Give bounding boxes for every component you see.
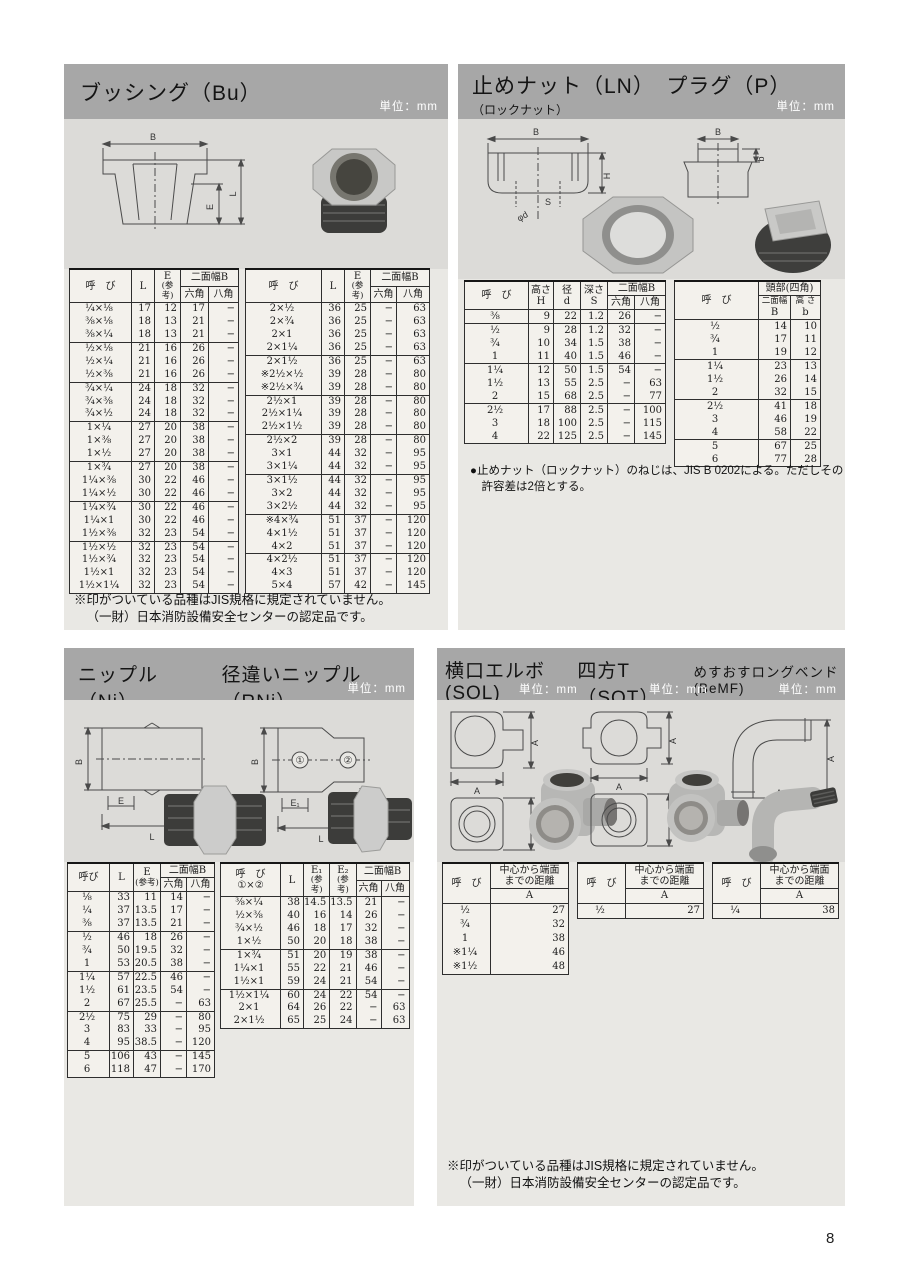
value-cell: − xyxy=(209,567,239,580)
size-name-cell: 1½ xyxy=(675,373,759,386)
value-cell: 55 xyxy=(281,963,304,976)
value-cell: 80 xyxy=(397,408,430,421)
value-cell: − xyxy=(381,949,409,962)
value-cell: − xyxy=(161,1051,187,1064)
table-row: 1¼×1302246− xyxy=(70,515,239,528)
value-cell: 16 xyxy=(155,356,181,369)
value-cell: − xyxy=(371,329,397,342)
size-name-cell: ½×⅛ xyxy=(70,342,132,355)
value-cell: 33 xyxy=(110,892,134,905)
value-cell: 25 xyxy=(345,329,371,342)
table-header: 呼 び①×② L E₁(参考) E₂(参考) 二面幅B 六角 八角 xyxy=(221,863,410,897)
table-row: 45822 xyxy=(675,426,821,440)
value-cell: 26 xyxy=(759,373,791,386)
value-cell: 30 xyxy=(132,501,155,514)
value-cell: 46 xyxy=(281,923,304,936)
col-E: E(参考) xyxy=(345,269,371,303)
dim-label-A: A xyxy=(826,756,836,762)
value-cell: 20 xyxy=(304,936,330,949)
value-cell: 20 xyxy=(155,448,181,461)
bushing-drawing-area: B E L xyxy=(64,119,448,269)
value-cell: − xyxy=(371,355,397,368)
size-name-cell: ※1½ xyxy=(443,960,491,975)
value-cell: − xyxy=(371,303,397,316)
table-row: ※1¼46 xyxy=(443,946,569,960)
table-header: 呼 び 高さH 径d 深さS 二面幅B 六角 八角 xyxy=(465,281,666,310)
value-cell: 27 xyxy=(132,448,155,461)
table-row: 2×½3625−63 xyxy=(246,303,430,316)
table-header: 呼 び 頭部(四角) 二面幅B 高 さb xyxy=(675,281,821,319)
value-cell: 21 xyxy=(181,329,209,342)
value-cell: 16 xyxy=(155,369,181,382)
value-cell: − xyxy=(187,905,215,918)
value-cell: − xyxy=(381,976,409,989)
col-yobi: 呼 び①×② xyxy=(221,863,281,897)
table-row: 215682.5−77 xyxy=(465,390,666,404)
col-E2: E₂(参考) xyxy=(330,863,356,897)
value-cell: 63 xyxy=(187,998,215,1011)
sol-drawing-area: A A A xyxy=(437,700,845,862)
rni-photo xyxy=(326,782,414,858)
table-row: 1×¾51201938− xyxy=(221,949,410,962)
value-cell: 38 xyxy=(491,932,569,946)
value-cell: 18 xyxy=(155,382,181,395)
value-cell: − xyxy=(187,985,215,998)
col-yobi: 呼 び xyxy=(443,863,491,903)
value-cell: − xyxy=(161,1064,187,1077)
value-cell: 34 xyxy=(554,337,581,350)
col-nimen-B: 二面幅B xyxy=(759,296,791,320)
value-cell: 30 xyxy=(132,515,155,528)
size-name-cell: 3 xyxy=(675,413,759,426)
table-row: ½9281.232− xyxy=(465,324,666,338)
col-E: E(参考) xyxy=(155,269,181,303)
size-name-cell: 1¼ xyxy=(465,364,529,378)
value-cell: 36 xyxy=(322,316,345,329)
table-row: ⅜9221.226− xyxy=(465,310,666,324)
value-cell: 95 xyxy=(397,448,430,461)
value-cell: 22 xyxy=(304,963,330,976)
size-name-cell: ½ xyxy=(578,903,626,918)
value-cell: − xyxy=(209,501,239,514)
value-cell: 27 xyxy=(132,462,155,475)
value-cell: 120 xyxy=(397,554,430,567)
port-1-label: ① xyxy=(296,756,305,767)
value-cell: 25 xyxy=(345,303,371,316)
value-cell: 37 xyxy=(110,905,134,918)
value-cell: 38 xyxy=(281,897,304,910)
rni-table: 呼 び①×② L E₁(参考) E₂(参考) 二面幅B 六角 八角 ⅜×¼381… xyxy=(220,862,410,1029)
value-cell: − xyxy=(187,932,215,945)
table-row: ¾×⅜241832− xyxy=(70,396,239,409)
value-cell: 32 xyxy=(132,528,155,541)
table-row: ¾×¼241832− xyxy=(70,382,239,395)
value-cell: 38 xyxy=(181,448,209,461)
value-cell: 44 xyxy=(322,501,345,514)
value-cell: − xyxy=(371,382,397,395)
value-cell: 32 xyxy=(132,541,155,554)
value-cell: 17 xyxy=(132,303,155,316)
jis-note: ※印がついている品種はJIS規格に規定されていません。 （一財）日本消防設備安全… xyxy=(74,592,391,626)
value-cell: − xyxy=(187,892,215,905)
table-row: ¾1711 xyxy=(675,333,821,346)
value-cell: − xyxy=(371,408,397,421)
value-cell: − xyxy=(635,324,666,338)
col-oct: 八角 xyxy=(209,286,239,303)
table-row: 1×⅜272038− xyxy=(70,435,239,448)
size-name-cell: 1×¼ xyxy=(70,422,132,435)
table-row: ½×¼211626− xyxy=(70,356,239,369)
value-cell: 75 xyxy=(110,1011,134,1024)
value-cell: − xyxy=(371,541,397,554)
table-row: 4×1½5137−120 xyxy=(246,528,430,541)
table-row: ¾10341.538− xyxy=(465,337,666,350)
value-cell: 54 xyxy=(356,989,381,1002)
value-cell: 88 xyxy=(554,404,581,418)
table-header: 呼 び 中心から端面までの距離 A xyxy=(713,863,839,903)
value-cell: 32 xyxy=(345,461,371,474)
table-row: 1½×1¼60242254− xyxy=(221,989,410,1002)
value-cell: 1.5 xyxy=(581,364,608,378)
nipple-table: 呼び L E(参考) 二面幅B 六角 八角 ⅛331114−¼3713.517−… xyxy=(67,862,215,1078)
value-cell: 21 xyxy=(356,897,381,910)
size-name-cell: 4 xyxy=(68,1037,110,1050)
value-cell: 26 xyxy=(181,356,209,369)
value-cell: 27 xyxy=(626,903,704,918)
value-cell: 100 xyxy=(554,417,581,430)
value-cell: 39 xyxy=(322,369,345,382)
value-cell: − xyxy=(371,395,397,408)
size-name-cell: 1½ xyxy=(465,377,529,390)
value-cell: − xyxy=(209,435,239,448)
value-cell: 95 xyxy=(187,1024,215,1037)
table-row: 38333−95 xyxy=(68,1024,215,1037)
value-cell: 16 xyxy=(155,342,181,355)
value-cell: 120 xyxy=(397,528,430,541)
size-name-cell: 2×½ xyxy=(246,303,322,316)
value-cell: − xyxy=(356,1015,381,1028)
value-cell: 39 xyxy=(322,395,345,408)
table-row: 4×2½5137−120 xyxy=(246,554,430,567)
table-row: ※2½×½3928−80 xyxy=(246,369,430,382)
dim-label-B: B xyxy=(533,127,539,137)
value-cell: 37 xyxy=(345,567,371,580)
nipple-title-bar: ニップル（Ni） 径違いニップル（RNi） 単位：mm xyxy=(64,648,414,700)
table-row: 2×1½3625−63 xyxy=(246,355,430,368)
value-cell: − xyxy=(371,461,397,474)
size-name-cell: ⅜×⅛ xyxy=(70,316,132,329)
value-cell: 63 xyxy=(381,1002,409,1015)
value-cell: − xyxy=(371,342,397,355)
size-name-cell: 3×1 xyxy=(246,448,322,461)
value-cell: − xyxy=(187,971,215,984)
size-name-cell: 1¼×⅜ xyxy=(70,475,132,488)
table-header: 呼 び 中心から端面までの距離 A xyxy=(578,863,704,903)
value-cell: 28 xyxy=(345,408,371,421)
bemf-table: 呼 び 中心から端面までの距離 A ¼38 xyxy=(712,862,839,919)
value-cell: 32 xyxy=(345,501,371,514)
table-row: ⅜×¼3814.513.521− xyxy=(221,897,410,910)
size-name-cell: 1×⅜ xyxy=(70,435,132,448)
value-cell: − xyxy=(209,422,239,435)
value-cell: − xyxy=(608,404,635,418)
table-row: 1¼×¾302246− xyxy=(70,501,239,514)
size-name-cell: ¾×½ xyxy=(70,408,132,421)
value-cell: 2.5 xyxy=(581,417,608,430)
value-cell: 80 xyxy=(397,382,430,395)
table-row: 3×1½4432−95 xyxy=(246,475,430,488)
value-cell: 24 xyxy=(132,408,155,421)
value-cell: 14 xyxy=(791,373,821,386)
value-cell: 20 xyxy=(155,435,181,448)
value-cell: 13.5 xyxy=(134,905,161,918)
value-cell: 16 xyxy=(304,910,330,923)
size-name-cell: 2½×2 xyxy=(246,435,322,448)
dim-label-B: B xyxy=(74,759,84,765)
table-row: ⅛331114− xyxy=(68,892,215,905)
dim-label-A: A xyxy=(668,738,678,744)
value-cell: 47 xyxy=(134,1064,161,1077)
value-cell: 60 xyxy=(281,989,304,1002)
value-cell: 32 xyxy=(345,488,371,501)
value-cell: 38 xyxy=(356,936,381,949)
table-body: ⅛331114−¼3713.517−⅜3713.521−½461826−¾501… xyxy=(68,892,215,1078)
table-row: ⅜3713.521− xyxy=(68,918,215,931)
table-row: 4×35137−120 xyxy=(246,567,430,580)
table-row: 2½×23928−80 xyxy=(246,435,430,448)
size-name-cell: 1 xyxy=(675,346,759,360)
col-L: L xyxy=(281,863,304,897)
value-cell: − xyxy=(608,417,635,430)
nipple-drawing-area: B E E L ① ② B xyxy=(64,700,414,862)
value-cell: 100 xyxy=(635,404,666,418)
value-cell: 33 xyxy=(134,1024,161,1037)
value-cell: 36 xyxy=(322,303,345,316)
table-row: 510643−145 xyxy=(68,1051,215,1064)
value-cell: 46 xyxy=(181,475,209,488)
table-row: ※2½×¾3928−80 xyxy=(246,382,430,395)
col-yobi: 呼 び xyxy=(713,863,761,903)
value-cell: 36 xyxy=(322,355,345,368)
dim-label-B: B xyxy=(715,127,721,137)
value-cell: 63 xyxy=(397,342,430,355)
size-name-cell: 1¼ xyxy=(68,971,110,984)
value-cell: 125 xyxy=(554,430,581,444)
value-cell: 19 xyxy=(330,949,356,962)
table-row: ¾32 xyxy=(443,918,569,932)
value-cell: 26 xyxy=(304,1002,330,1015)
table-row: ※1½48 xyxy=(443,960,569,975)
dim-label-E: E xyxy=(205,204,215,210)
unit-label-sol: 単位：mm xyxy=(519,681,578,697)
table-row: 3×14432−95 xyxy=(246,448,430,461)
value-cell: 64 xyxy=(281,1002,304,1015)
value-cell: − xyxy=(371,475,397,488)
col-nimen: 二面幅B xyxy=(161,863,215,878)
value-cell: 22 xyxy=(529,430,554,444)
sot-table: 呼 び 中心から端面までの距離 A ½27 xyxy=(577,862,704,919)
value-cell: 17 xyxy=(330,923,356,936)
value-cell: 170 xyxy=(187,1064,215,1077)
value-cell: 17 xyxy=(181,303,209,316)
value-cell: 63 xyxy=(397,355,430,368)
value-cell: 25 xyxy=(345,316,371,329)
dim-label-E: E xyxy=(118,796,124,806)
dim-label-B: B xyxy=(150,132,156,142)
value-cell: 32 xyxy=(181,382,209,395)
table-body: ½1410¾1711119121¼23131½2614232152½411834… xyxy=(675,319,821,466)
table-row: ½×⅜211626− xyxy=(70,369,239,382)
col-yobi: 呼 び xyxy=(246,269,322,303)
value-cell: 37 xyxy=(110,918,134,931)
value-cell: 54 xyxy=(181,541,209,554)
value-cell: 26 xyxy=(608,310,635,324)
value-cell: 22 xyxy=(155,475,181,488)
value-cell: 95 xyxy=(397,488,430,501)
jis-note-line1: ※印がついている品種はJIS規格に規定されていません。 xyxy=(74,592,391,609)
table-row: ¾×½46181732− xyxy=(221,923,410,936)
value-cell: 44 xyxy=(322,461,345,474)
value-cell: 51 xyxy=(322,567,345,580)
value-cell: − xyxy=(381,963,409,976)
dim-label-A: A xyxy=(474,786,480,796)
value-cell: 51 xyxy=(322,528,345,541)
size-name-cell: 1½×⅜ xyxy=(70,528,132,541)
value-cell: − xyxy=(371,435,397,448)
col-hex: 六角 xyxy=(371,286,397,303)
unit-label: 単位：mm xyxy=(776,98,835,114)
value-cell: 63 xyxy=(397,329,430,342)
value-cell: 58 xyxy=(759,426,791,440)
value-cell: 20.5 xyxy=(134,958,161,971)
value-cell: 27 xyxy=(132,422,155,435)
value-cell: 22 xyxy=(155,501,181,514)
table-row: 2×1642622−63 xyxy=(221,1002,410,1015)
table-row: 1½2614 xyxy=(675,373,821,386)
value-cell: 21 xyxy=(181,316,209,329)
value-cell: 15 xyxy=(529,390,554,404)
value-cell: 77 xyxy=(635,390,666,404)
value-cell: 20 xyxy=(304,949,330,962)
table-row: 2½×13928−80 xyxy=(246,395,430,408)
value-cell: − xyxy=(209,462,239,475)
locknut-drawing-area: B H φd S b B xyxy=(458,119,845,279)
value-cell: − xyxy=(187,918,215,931)
size-name-cell: ⅛ xyxy=(68,892,110,905)
col-oct: 八角 xyxy=(381,880,409,897)
value-cell: 14 xyxy=(759,319,791,333)
value-cell: 12 xyxy=(529,364,554,378)
size-name-cell: 1½×¾ xyxy=(70,554,132,567)
value-cell: 10 xyxy=(791,319,821,333)
value-cell: 11 xyxy=(529,350,554,364)
locknut-title-bar: 止めナット（LN） プラグ（P） （ロックナット） 単位：mm xyxy=(458,64,845,119)
value-cell: − xyxy=(209,382,239,395)
value-cell: − xyxy=(371,554,397,567)
size-name-cell: ¼ xyxy=(68,905,110,918)
size-name-cell: 3×2 xyxy=(246,488,322,501)
table-row: 3×24432−95 xyxy=(246,488,430,501)
size-name-cell: ½ xyxy=(675,319,759,333)
value-cell: 13 xyxy=(155,329,181,342)
value-cell: 57 xyxy=(110,971,134,984)
table-row: 1¼×155222146− xyxy=(221,963,410,976)
table-row: ¼38 xyxy=(713,903,839,918)
table-row: 1¼×⅜302246− xyxy=(70,475,239,488)
value-cell: − xyxy=(371,448,397,461)
value-cell: 21 xyxy=(132,356,155,369)
col-oct: 八角 xyxy=(187,878,215,892)
table-row: 1½×⅜322354− xyxy=(70,528,239,541)
value-cell: − xyxy=(209,515,239,528)
size-name-cell: 1¼ xyxy=(675,359,759,373)
size-name-cell: 1½×1 xyxy=(221,976,281,989)
dim-label-S: S xyxy=(545,197,551,207)
value-cell: 23 xyxy=(759,359,791,373)
value-cell: 17 xyxy=(759,333,791,346)
dim-label-L: L xyxy=(149,832,154,842)
col-d: 径d xyxy=(554,281,581,310)
size-name-cell: ½×¼ xyxy=(70,356,132,369)
size-name-cell: 4×2½ xyxy=(246,554,322,567)
value-cell: 21 xyxy=(132,342,155,355)
value-cell: 27 xyxy=(132,435,155,448)
value-cell: 46 xyxy=(759,413,791,426)
table-body: ⅜9221.226−½9281.232−¾10341.538−111401.54… xyxy=(465,310,666,444)
value-cell: 46 xyxy=(356,963,381,976)
value-cell: 2.5 xyxy=(581,404,608,418)
value-cell: − xyxy=(381,923,409,936)
value-cell: − xyxy=(209,316,239,329)
value-cell: 11 xyxy=(134,892,161,905)
col-E: E(参考) xyxy=(134,863,161,892)
value-cell: 95 xyxy=(397,501,430,514)
value-cell: 19 xyxy=(791,413,821,426)
value-cell: 63 xyxy=(635,377,666,390)
bushing-table-right: 呼 び L E(参考) 二面幅B 六角 八角 2×½3625−632×¾3625… xyxy=(245,268,430,594)
value-cell: 44 xyxy=(322,448,345,461)
dim-label-L: L xyxy=(318,834,323,844)
col-oct: 八角 xyxy=(397,286,430,303)
table-row: ½×⅛211626− xyxy=(70,342,239,355)
unit-label: 単位：mm xyxy=(347,680,406,696)
value-cell: 43 xyxy=(134,1051,161,1064)
col-L: L xyxy=(132,269,155,303)
value-cell: 18 xyxy=(155,408,181,421)
value-cell: 19.5 xyxy=(134,945,161,958)
size-name-cell: ½×⅜ xyxy=(70,369,132,382)
value-cell: − xyxy=(209,396,239,409)
value-cell: 2.5 xyxy=(581,377,608,390)
table-row: 611847−170 xyxy=(68,1064,215,1077)
value-cell: 51 xyxy=(281,949,304,962)
value-cell: − xyxy=(161,1037,187,1050)
unit-label-sot: 単位：mm xyxy=(649,681,708,697)
value-cell: 21 xyxy=(132,369,155,382)
size-name-cell: 1½×½ xyxy=(70,541,132,554)
value-cell: 145 xyxy=(635,430,666,444)
table-row: 2×13625−63 xyxy=(246,329,430,342)
value-cell: 51 xyxy=(322,554,345,567)
value-cell: 40 xyxy=(554,350,581,364)
value-cell: 24 xyxy=(132,382,155,395)
value-cell: 54 xyxy=(181,554,209,567)
value-cell: 39 xyxy=(322,382,345,395)
value-cell: 26 xyxy=(356,910,381,923)
size-name-cell: ¾ xyxy=(675,333,759,346)
value-cell: 28 xyxy=(345,421,371,434)
value-cell: 28 xyxy=(345,369,371,382)
